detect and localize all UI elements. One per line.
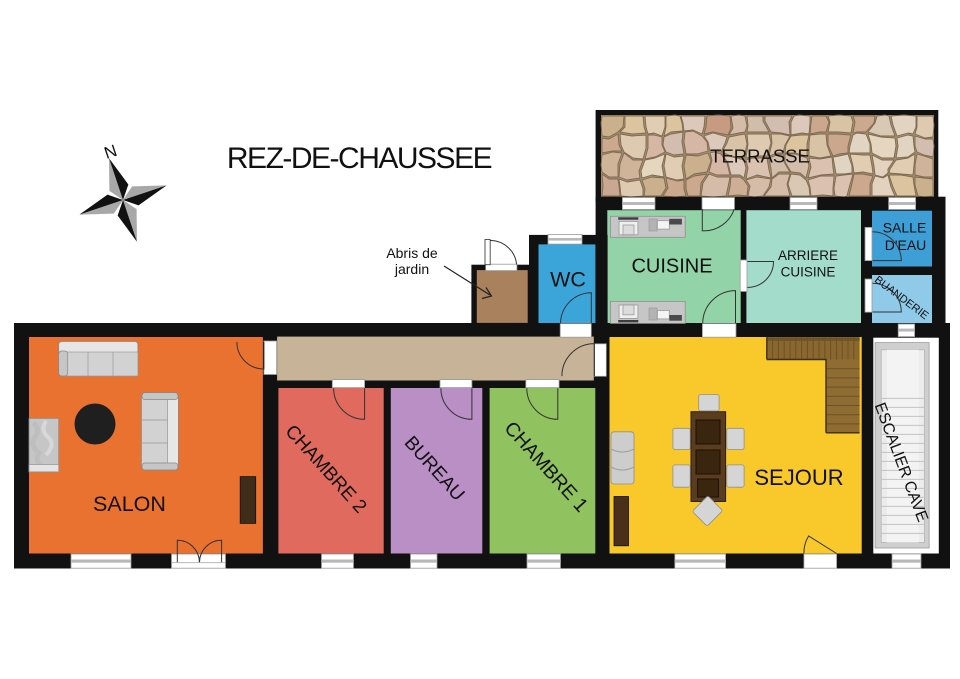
svg-text:SALLE: SALLE xyxy=(883,220,927,236)
svg-text:SALON: SALON xyxy=(93,492,166,516)
svg-text:CUISINE: CUISINE xyxy=(631,256,712,278)
svg-text:Abris de: Abris de xyxy=(386,245,438,261)
svg-text:REZ-DE-CHAUSSEE: REZ-DE-CHAUSSEE xyxy=(227,142,492,175)
svg-text:ARRIERE: ARRIERE xyxy=(778,248,838,263)
svg-text:SEJOUR: SEJOUR xyxy=(754,465,843,490)
svg-text:TERRASSE: TERRASSE xyxy=(710,145,810,166)
svg-text:CUISINE: CUISINE xyxy=(781,265,836,280)
svg-text:WC: WC xyxy=(550,268,586,292)
svg-text:jardin: jardin xyxy=(394,261,429,277)
svg-text:D'EAU: D'EAU xyxy=(885,237,927,253)
